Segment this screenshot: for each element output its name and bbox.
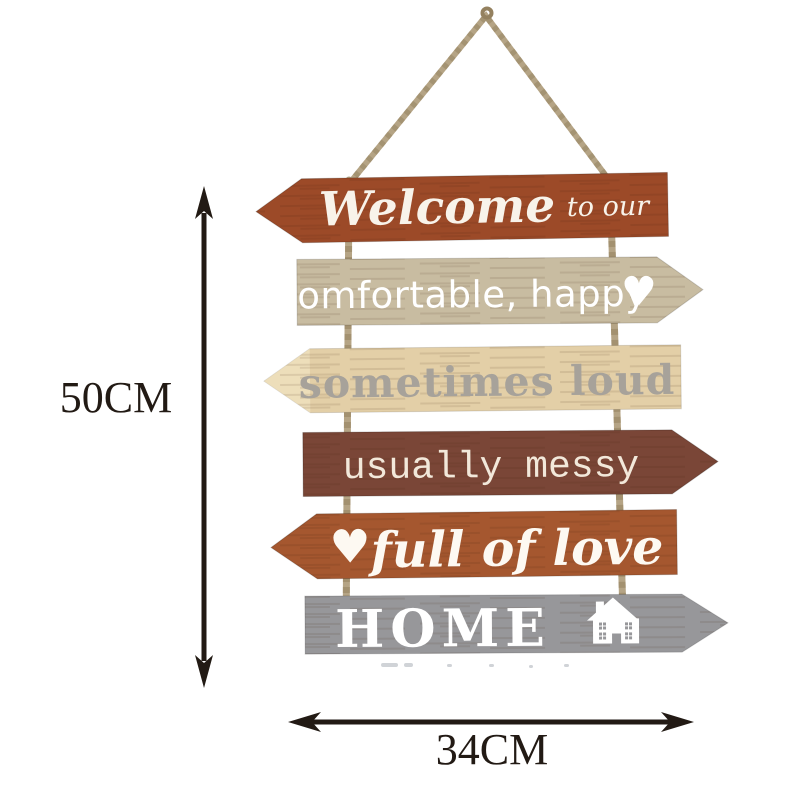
- sign-illustration: Welcome to our comfortable, happy ♥ some…: [0, 0, 800, 800]
- plank-comfortable-text: comfortable, happy: [276, 272, 647, 318]
- rope-right-strand: [610, 178, 624, 648]
- plank-full-of-love: ♥ full of love: [271, 510, 678, 581]
- rope-hanger-v-twist: [349, 16, 609, 184]
- width-dimension-arrow: 34CM: [288, 712, 694, 774]
- height-dimension-arrow: 50CM: [60, 186, 213, 688]
- product-photo: Welcome to our comfortable, happy ♥ some…: [0, 0, 800, 800]
- width-label: 34CM: [436, 725, 548, 774]
- plank-home: HOME: [305, 594, 728, 660]
- heart-icon: ♥: [329, 519, 371, 573]
- height-label: 50CM: [60, 373, 172, 422]
- plank-welcome-suffix-text: to our: [567, 191, 652, 223]
- rope-hanger-v: [349, 16, 609, 184]
- plank-usually-messy: usually messy: [303, 430, 718, 497]
- plank-love-text: full of love: [367, 518, 663, 580]
- plank-sometimes-text: sometimes loud: [298, 356, 675, 408]
- plank-welcome-text: Welcome: [318, 178, 555, 237]
- plank-home-text: HOME: [335, 598, 551, 660]
- plank-usually-text: usually messy: [343, 445, 640, 490]
- heart-icon: ♥: [621, 269, 657, 315]
- cropped-caption-remnant: [381, 663, 569, 668]
- plank-comfortable: comfortable, happy ♥: [276, 257, 703, 326]
- house-door: [612, 633, 621, 643]
- plank-welcome: Welcome to our: [255, 172, 668, 243]
- plank-sometimes-loud: sometimes loud: [264, 345, 682, 413]
